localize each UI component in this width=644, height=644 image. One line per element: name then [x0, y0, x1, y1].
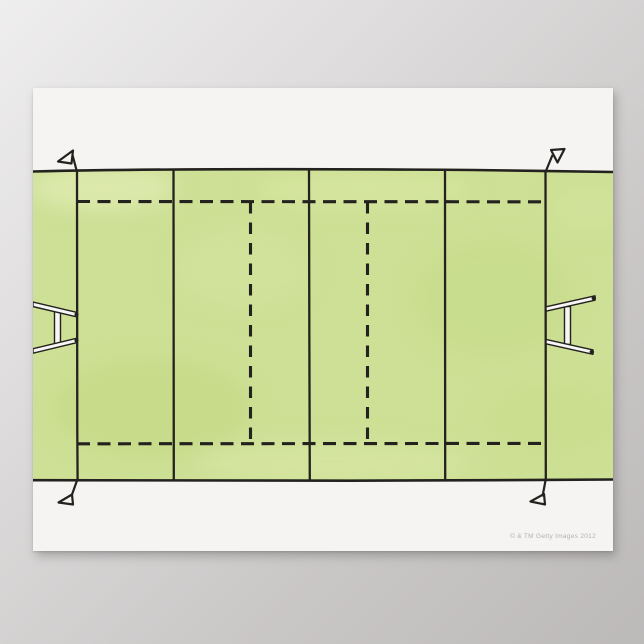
rugby-field-illustration [33, 88, 613, 551]
corner-flag-bottom-left [59, 481, 78, 505]
post-cap [75, 339, 79, 343]
halfway-line [309, 170, 310, 481]
post-crossbar [55, 310, 61, 345]
corner-flag-top-left [58, 151, 77, 173]
flag-pennant [59, 495, 74, 505]
post-cap [75, 313, 79, 317]
touchline-bottom [33, 480, 613, 481]
post-cap [590, 350, 594, 354]
flag-pennant [551, 149, 565, 163]
post-cap [592, 296, 596, 300]
watermark: © & TM Getty Images 2012 [510, 533, 596, 541]
corner-flag-bottom-right [531, 481, 546, 505]
corner-flag-top-right [546, 149, 565, 172]
post-crossbar [565, 307, 571, 345]
flag-pole [546, 155, 553, 172]
goal-line-left [77, 171, 78, 481]
poster: © & TM Getty Images 2012 [33, 88, 613, 551]
flag-pennant [58, 151, 73, 164]
flag-pennant [531, 494, 546, 505]
page-background: © & TM Getty Images 2012 [0, 0, 644, 644]
